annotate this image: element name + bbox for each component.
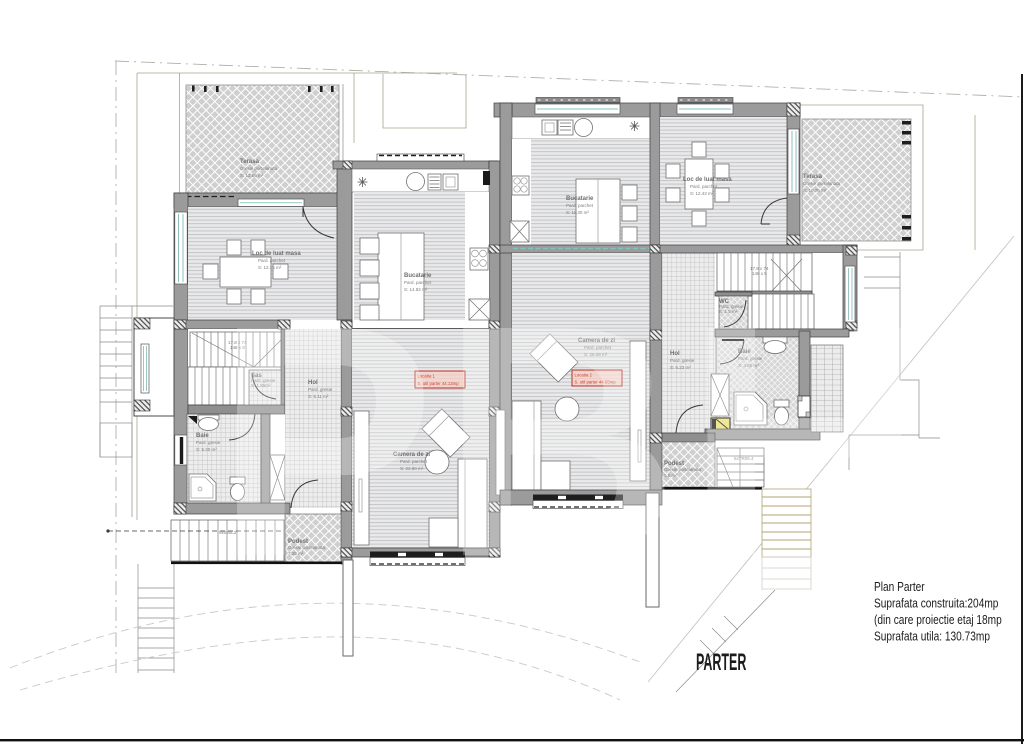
svg-text:Gresie portelanata: Gresie portelanata	[240, 166, 278, 171]
svg-text:(din care proiectie etaj 18mp: (din care proiectie etaj 18mp	[874, 613, 1002, 627]
svg-text:Bucatarie: Bucatarie	[566, 196, 594, 202]
svg-text:PBH: PBH	[215, 256, 930, 625]
svg-text:S: 10.76 m²: S: 10.76 m²	[803, 188, 827, 193]
svg-text:Plan Parter: Plan Parter	[874, 580, 925, 594]
svg-text:S: 11.30 m²: S: 11.30 m²	[566, 210, 589, 215]
svg-text:Pard. parchet: Pard. parchet	[566, 203, 594, 208]
svg-text:S: 12.43 m²: S: 12.43 m²	[690, 191, 714, 196]
svg-text:Terasa: Terasa	[803, 174, 823, 180]
svg-text:Gresie portelanata: Gresie portelanata	[803, 181, 841, 186]
svg-text:Suprafata utila: 130.73mp: Suprafata utila: 130.73mp	[874, 629, 990, 643]
svg-text:Loc de luat masa: Loc de luat masa	[683, 177, 732, 183]
svg-text:Pard. parchet: Pard. parchet	[690, 184, 718, 189]
svg-text:S: 12.86 m²: S: 12.86 m²	[240, 173, 264, 178]
svg-text:Terasa: Terasa	[240, 159, 260, 165]
svg-text:Suprafata construita:204mp: Suprafata construita:204mp	[874, 596, 998, 610]
svg-text:Baie: Baie	[196, 433, 209, 439]
svg-text:PARTER: PARTER	[696, 650, 746, 676]
